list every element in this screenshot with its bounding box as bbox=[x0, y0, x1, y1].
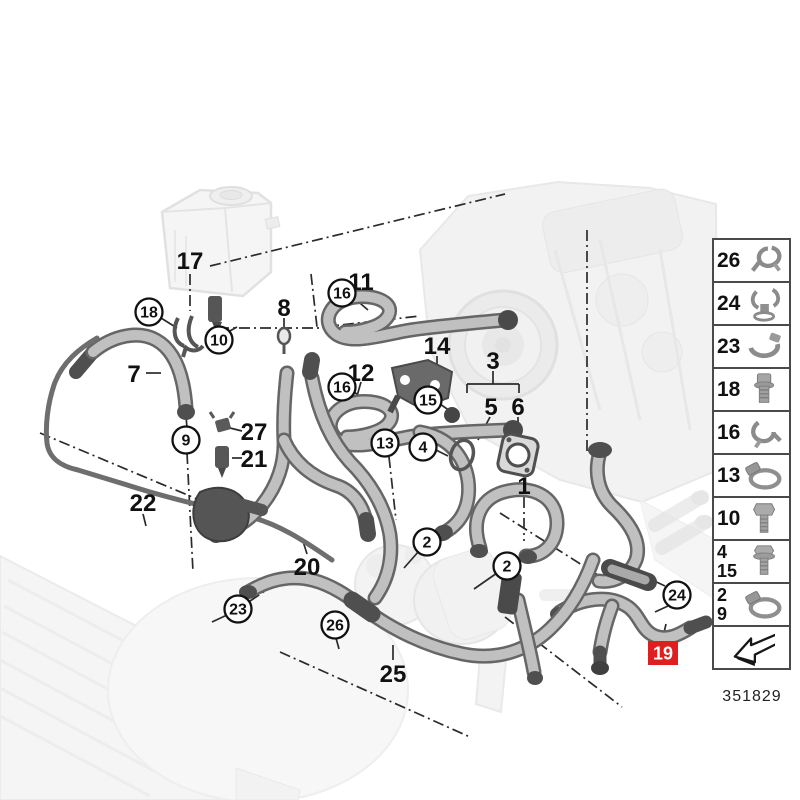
callout-1[interactable]: 1 bbox=[517, 473, 530, 500]
svg-text:15: 15 bbox=[419, 393, 437, 410]
legend-row-4-15[interactable]: 415 bbox=[712, 539, 791, 584]
bleed-screw bbox=[278, 328, 290, 354]
legend-label: 15 bbox=[717, 562, 743, 581]
svg-text:24: 24 bbox=[668, 588, 686, 605]
svg-text:16: 16 bbox=[333, 286, 351, 303]
diagram-number: 351829 bbox=[706, 688, 798, 706]
gasket-6 bbox=[496, 433, 539, 478]
parts-diagram: 1781112143562721722202511810161615134923… bbox=[0, 0, 800, 800]
band-clamp-icon bbox=[743, 327, 789, 367]
legend-label: 9 bbox=[717, 605, 743, 624]
callout-17[interactable]: 17 bbox=[177, 248, 204, 275]
legend-label: 16 bbox=[717, 422, 743, 443]
hex-bolt-icon bbox=[743, 499, 789, 539]
legend-row-16[interactable]: 16 bbox=[712, 410, 791, 455]
legend-row-10[interactable]: 10 bbox=[712, 496, 791, 541]
legend-table: 2624231816131041529 bbox=[712, 238, 791, 670]
legend-label: 2 bbox=[717, 586, 743, 605]
callout-circled-15-4[interactable]: 15 bbox=[415, 387, 442, 414]
expansion-tank bbox=[162, 187, 280, 296]
svg-text:19: 19 bbox=[653, 644, 673, 664]
flange-bolt-icon bbox=[743, 542, 789, 582]
callout-circled-10-1[interactable]: 10 bbox=[206, 327, 233, 354]
callout-highlighted-19[interactable]: 19 bbox=[648, 641, 678, 665]
direction-arrow-icon bbox=[729, 628, 775, 668]
callout-circled-4-6[interactable]: 4 bbox=[410, 434, 437, 461]
svg-text:2: 2 bbox=[423, 535, 432, 552]
svg-text:9: 9 bbox=[182, 433, 191, 450]
callout-circled-24-12[interactable]: 24 bbox=[664, 582, 691, 609]
callout-circled-16-2[interactable]: 16 bbox=[329, 280, 356, 307]
legend-row-18[interactable]: 18 bbox=[712, 367, 791, 412]
legend-label: 23 bbox=[717, 336, 743, 357]
callout-circled-2-10[interactable]: 2 bbox=[414, 529, 441, 556]
svg-text:18: 18 bbox=[140, 305, 158, 322]
svg-text:26: 26 bbox=[326, 618, 344, 635]
retaining-clamp bbox=[175, 316, 203, 357]
legend-row-2-9[interactable]: 29 bbox=[712, 582, 791, 627]
callout-circled-13-5[interactable]: 13 bbox=[372, 430, 399, 457]
callout-25[interactable]: 25 bbox=[380, 661, 407, 688]
svg-text:13: 13 bbox=[376, 436, 394, 453]
callout-27[interactable]: 27 bbox=[241, 419, 268, 446]
legend-label: 26 bbox=[717, 250, 743, 271]
bolt-short-icon bbox=[743, 370, 789, 410]
callout-3[interactable]: 3 bbox=[486, 348, 499, 375]
svg-text:2: 2 bbox=[503, 559, 512, 576]
callout-8[interactable]: 8 bbox=[277, 295, 290, 322]
clip-27 bbox=[210, 412, 234, 433]
callout-6[interactable]: 6 bbox=[511, 394, 524, 421]
svg-text:10: 10 bbox=[210, 333, 228, 350]
callout-7[interactable]: 7 bbox=[127, 361, 140, 388]
hose-1 bbox=[470, 490, 557, 564]
sensor-21 bbox=[215, 446, 229, 478]
callout-circled-26-9[interactable]: 26 bbox=[322, 612, 349, 639]
callout-20[interactable]: 20 bbox=[294, 554, 321, 581]
legend-row-26[interactable]: 26 bbox=[712, 238, 791, 283]
callout-22[interactable]: 22 bbox=[130, 490, 157, 517]
callout-5[interactable]: 5 bbox=[484, 394, 497, 421]
legend-label: 24 bbox=[717, 293, 743, 314]
mount-clip-icon bbox=[743, 284, 789, 324]
callout-circled-2-11[interactable]: 2 bbox=[494, 553, 521, 580]
callout-circled-23-8[interactable]: 23 bbox=[225, 596, 252, 623]
legend-direction-arrow-row bbox=[712, 625, 791, 670]
legend-row-24[interactable]: 24 bbox=[712, 281, 791, 326]
hose-clamp-icon bbox=[743, 585, 789, 625]
callout-21[interactable]: 21 bbox=[241, 446, 268, 473]
legend-label: 10 bbox=[717, 508, 743, 529]
spring-clip-2-icon bbox=[743, 413, 789, 453]
parts-catalog-page: 1781112143562721722202511810161615134923… bbox=[0, 0, 800, 800]
spring-clip-icon bbox=[743, 241, 789, 281]
svg-text:23: 23 bbox=[229, 602, 247, 619]
callout-14[interactable]: 14 bbox=[424, 333, 451, 360]
legend-row-13[interactable]: 13 bbox=[712, 453, 791, 498]
callout-circled-16-3[interactable]: 16 bbox=[329, 374, 356, 401]
callout-circled-18-0[interactable]: 18 bbox=[136, 299, 163, 326]
legend-row-23[interactable]: 23 bbox=[712, 324, 791, 369]
svg-text:4: 4 bbox=[419, 440, 428, 457]
bolt-15 bbox=[444, 407, 460, 423]
hose-clamp-icon bbox=[743, 456, 789, 496]
svg-text:16: 16 bbox=[333, 380, 351, 397]
callout-circled-9-7[interactable]: 9 bbox=[173, 427, 200, 454]
legend-label: 13 bbox=[717, 465, 743, 486]
legend-label: 4 bbox=[717, 543, 743, 562]
legend-label: 18 bbox=[717, 379, 743, 400]
